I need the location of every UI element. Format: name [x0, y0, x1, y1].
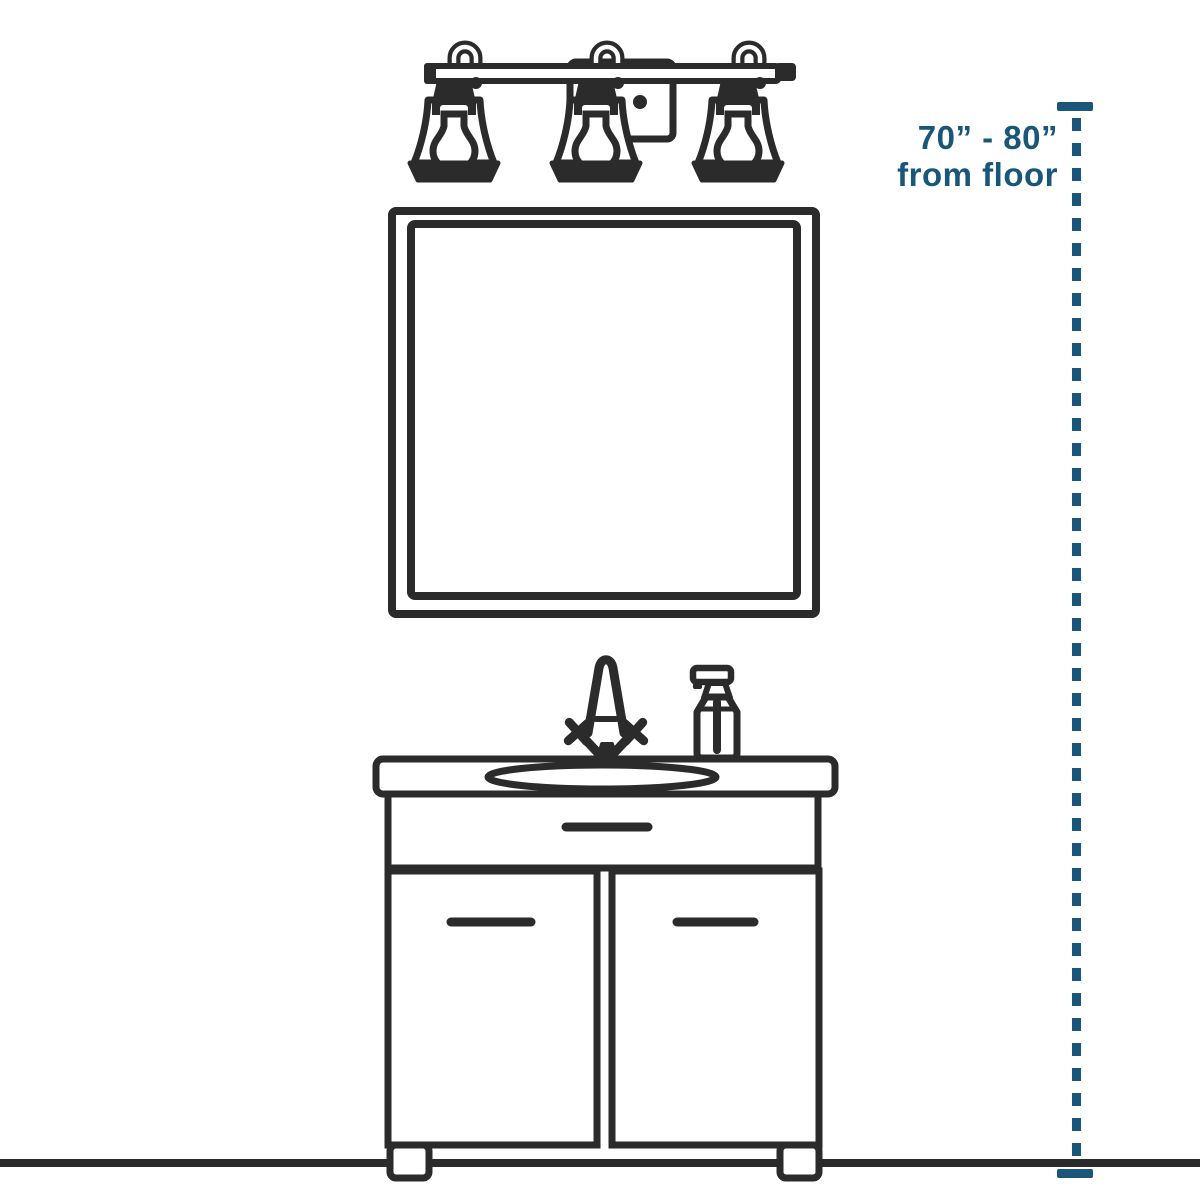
lamp-shade-right — [694, 77, 782, 180]
mirror-icon — [392, 211, 816, 614]
height-annotation: 70” - 80” from floor — [897, 119, 1058, 193]
fixture-bar — [430, 66, 778, 81]
vanity-cabinet-icon — [376, 759, 835, 1178]
vanity-light-fixture-icon — [410, 47, 796, 180]
sink-basin — [488, 765, 716, 789]
measurement-top-cap — [1057, 102, 1093, 111]
fixture-bar-left-cap — [424, 63, 436, 84]
height-range-label: 70” - 80” — [897, 119, 1058, 156]
height-measurement-line — [1057, 102, 1093, 1178]
vanity-height-diagram: 70” - 80” from floor — [0, 0, 1200, 1200]
cabinet-foot-right — [780, 1145, 819, 1178]
cabinet-door-right — [612, 871, 819, 1145]
wall-plate-screw — [633, 95, 647, 109]
mirror-inner-frame — [411, 224, 797, 596]
faucet-icon — [560, 660, 653, 758]
cabinet-foot-left — [390, 1145, 429, 1178]
height-reference-label: from floor — [897, 156, 1058, 193]
fixture-bar-right-cap — [775, 63, 796, 81]
lamp-shade-left — [410, 77, 498, 180]
soap-dispenser-icon — [693, 668, 737, 758]
cabinet-door-left — [388, 871, 597, 1145]
measurement-bottom-cap — [1057, 1169, 1093, 1178]
